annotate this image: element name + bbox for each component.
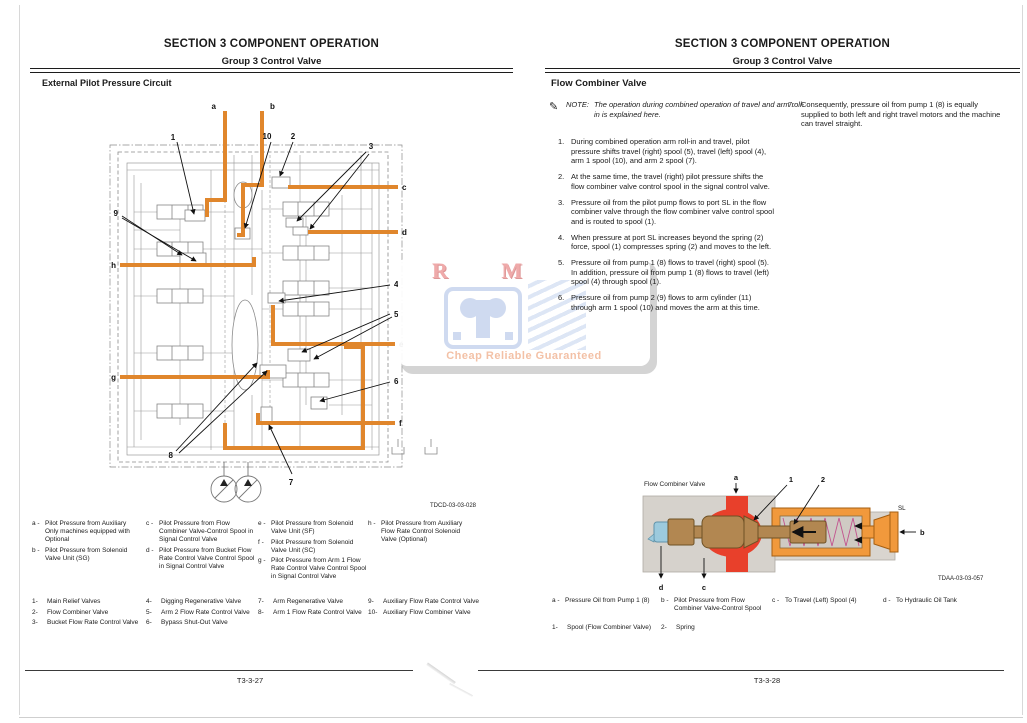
pump-symbols [211, 462, 261, 502]
legend-column: d -To Hydraulic Oil Tank [883, 597, 991, 605]
step-text: At the same time, the travel (right) pil… [571, 172, 776, 191]
step-item: 4.When pressure at port SL increases bey… [558, 233, 780, 252]
steps-list: 1.During combined operation arm roll-in … [558, 137, 780, 313]
header-title: SECTION 3 COMPONENT OPERATION [545, 38, 1020, 50]
callout-6: 6 [394, 377, 399, 386]
step-text: Pressure oil from the pilot pump flows t… [571, 198, 776, 227]
step-number: 6. [558, 293, 571, 312]
legend-text: Auxiliary Flow Combiner Valve [383, 609, 481, 617]
note-text: The operation during combined operation … [594, 100, 804, 119]
legend-key: 7- [258, 598, 273, 606]
header-rule [30, 68, 513, 73]
port-sl-label: SL [898, 505, 906, 512]
step-item: 6.Pressure oil from pump 2 (9) flows to … [558, 293, 780, 312]
legend-key: c - [146, 520, 159, 544]
legend-text: Pressure Oil from Pump 1 (8) [565, 597, 660, 605]
legend-entry: a -Pilot Pressure from Auxiliary Only ma… [32, 520, 142, 544]
legend-entry: b -Pilot Pressure from Flow Combiner Val… [661, 597, 769, 613]
callout-2: 2 [821, 475, 825, 484]
legend-key: c - [772, 597, 785, 605]
legend-entry: h -Pilot Pressure from Auxiliary Flow Ra… [368, 520, 478, 544]
step-number: 1. [558, 137, 571, 166]
note-label: NOTE: [566, 100, 589, 110]
legend-text: Pilot Pressure from Auxiliary Flow Rate … [381, 520, 477, 544]
figure-code: TDAA-03-03-057 [938, 576, 984, 582]
note-icon: ✎ [549, 100, 558, 113]
legend-key: d - [146, 547, 159, 571]
callout-d: d [402, 228, 407, 237]
legend-key: a - [32, 520, 45, 544]
legend-entry: b -Pilot Pressure from Solenoid Valve Un… [32, 547, 142, 563]
header-subtitle: Group 3 Control Valve [30, 56, 513, 67]
section-title: Flow Combiner Valve [551, 78, 647, 89]
legend-entry: 2-Spring [661, 624, 769, 632]
legend-column: 4-Digging Regenerative Valve 5-Arm 2 Flo… [146, 598, 261, 627]
legend-key: e - [258, 520, 271, 536]
legend-column: b -Pilot Pressure from Flow Combiner Val… [661, 597, 769, 613]
legend-text: To Hydraulic Oil Tank [896, 597, 991, 605]
legend-column: h -Pilot Pressure from Auxiliary Flow Ra… [368, 520, 478, 544]
legend-text: Pilot Pressure from Solenoid Valve Unit … [271, 520, 367, 536]
header-title: SECTION 3 COMPONENT OPERATION [30, 38, 513, 50]
tank-symbols [392, 439, 437, 454]
legend-text: Arm 1 Flow Rate Control Valve [273, 609, 371, 617]
step-item: 3.Pressure oil from the pilot pump flows… [558, 198, 780, 227]
callout-f: f [399, 419, 402, 428]
legend-text: Spool (Flow Combiner Valve) [567, 624, 660, 632]
callout-d: d [659, 583, 664, 592]
legend-entry: g -Pilot Pressure from Arm 1 Flow Rate C… [258, 557, 368, 581]
legend-column: 1-Spool (Flow Combiner Valve) [552, 624, 660, 632]
legend-entry: 1-Spool (Flow Combiner Valve) [552, 624, 660, 632]
section-title: External Pilot Pressure Circuit [42, 78, 172, 88]
legend-entry: 9-Auxiliary Flow Rate Control Valve [368, 598, 483, 606]
note: NOTE: The operation during combined oper… [566, 100, 806, 119]
callout-2: 2 [291, 132, 296, 141]
callout-c: c [702, 583, 706, 592]
legend-text: Bypass Shut-Out Valve [161, 619, 259, 627]
legend-text: Bucket Flow Rate Control Valve [47, 619, 145, 627]
legend-entry: c -Pilot Pressure from Flow Combiner Val… [146, 520, 256, 544]
legend-column: e -Pilot Pressure from Solenoid Valve Un… [258, 520, 368, 581]
step-text: Pressure oil from pump 1 (8) flows to tr… [571, 258, 776, 287]
legend-key: 1- [552, 624, 567, 632]
step-item: 1.During combined operation arm roll-in … [558, 137, 780, 166]
legend-column: 9-Auxiliary Flow Rate Control Valve 10-A… [368, 598, 483, 617]
step-text: When pressure at port SL increases beyon… [571, 233, 776, 252]
legend-key: 10- [368, 609, 383, 617]
legend-text: Pilot Pressure from Arm 1 Flow Rate Cont… [271, 557, 367, 581]
legend-text: Arm Regenerative Valve [273, 598, 371, 606]
legend-entry: f -Pilot Pressure from Solenoid Valve Un… [258, 539, 368, 555]
legend-text: Main Relief Valves [47, 598, 145, 606]
diagram-label: Flow Combiner Valve [644, 481, 706, 488]
legend-entry: 8-Arm 1 Flow Rate Control Valve [258, 609, 373, 617]
callout-7: 7 [289, 478, 294, 487]
legend-key: a - [552, 597, 565, 605]
legend-entry: a -Pressure Oil from Pump 1 (8) [552, 597, 660, 605]
legend-key: g - [258, 557, 271, 581]
legend-key: 2- [661, 624, 676, 632]
legend-entry: 10-Auxiliary Flow Combiner Valve [368, 609, 483, 617]
callout-3: 3 [369, 142, 374, 151]
legend-text: Auxiliary Flow Rate Control Valve [383, 598, 481, 606]
legend-key: b - [661, 597, 674, 613]
legend-key: 5- [146, 609, 161, 617]
legend-text: Pilot Pressure from Flow Combiner Valve-… [159, 520, 255, 544]
step-item: 5.Pressure oil from pump 1 (8) flows to … [558, 258, 780, 287]
legend-column: a -Pressure Oil from Pump 1 (8) [552, 597, 660, 605]
legend-entry: 7-Arm Regenerative Valve [258, 598, 373, 606]
callout-10: 10 [263, 132, 272, 141]
callout-a: a [212, 102, 217, 111]
callout-9: 9 [114, 209, 119, 218]
legend-text: Pilot Pressure from Bucket Flow Rate Con… [159, 547, 255, 571]
legend-entry: d -Pilot Pressure from Bucket Flow Rate … [146, 547, 256, 571]
legend-column: 2-Spring [661, 624, 769, 632]
step-text: Consequently, pressure oil from pump 1 (… [801, 100, 1006, 129]
legend-column: c -To Travel (Left) Spool (4) [772, 597, 880, 605]
manual-spread: { "document": { "watermark": { "top": "R… [0, 0, 1027, 723]
legend-key: 3- [32, 619, 47, 627]
legend-key: d - [883, 597, 896, 605]
header-subtitle: Group 3 Control Valve [545, 56, 1020, 67]
legend-text: Pilot Pressure from Flow Combiner Valve-… [674, 597, 769, 613]
legend-entry: 4-Digging Regenerative Valve [146, 598, 261, 606]
step-number: 5. [558, 258, 571, 287]
legend-entry: 5-Arm 2 Flow Rate Control Valve [146, 609, 261, 617]
step-number: 3. [558, 198, 571, 227]
step-number: 7. [788, 100, 801, 129]
callout-b: b [270, 102, 275, 111]
legend-text: Spring [676, 624, 769, 632]
legend-text: Pilot Pressure from Solenoid Valve Unit … [45, 547, 141, 563]
step-number: 4. [558, 233, 571, 252]
legend-key: 2- [32, 609, 47, 617]
legend-column: 1-Main Relief Valves 2-Flow Combiner Val… [32, 598, 147, 627]
callout-c: c [402, 183, 407, 192]
callout-h: h [111, 261, 116, 270]
legend-text: Flow Combiner Valve [47, 609, 145, 617]
legend-entry: d -To Hydraulic Oil Tank [883, 597, 991, 605]
legend-entry: 2-Flow Combiner Valve [32, 609, 147, 617]
step-text: Pressure oil from pump 2 (9) flows to ar… [571, 293, 776, 312]
legend-key: h - [368, 520, 381, 544]
callout-b: b [920, 528, 925, 537]
page-right: SECTION 3 COMPONENT OPERATION Group 3 Co… [535, 0, 1027, 723]
legend-entry: c -To Travel (Left) Spool (4) [772, 597, 880, 605]
legend-key: f - [258, 539, 271, 555]
watermark-tool-icon [443, 286, 523, 350]
step-number: 2. [558, 172, 571, 191]
legend-text: Digging Regenerative Valve [161, 598, 259, 606]
legend-column: c -Pilot Pressure from Flow Combiner Val… [146, 520, 256, 571]
legend-entry: 1-Main Relief Valves [32, 598, 147, 606]
legend-column: 7-Arm Regenerative Valve 8-Arm 1 Flow Ra… [258, 598, 373, 617]
callout-g: g [111, 373, 116, 382]
legend-entry: 3-Bucket Flow Rate Control Valve [32, 619, 147, 627]
step-item: 7. Consequently, pressure oil from pump … [788, 100, 1010, 129]
figure-code: TDCD-03-03-028 [430, 503, 477, 509]
callout-8: 8 [169, 451, 174, 460]
callout-1: 1 [171, 133, 176, 142]
legend-entry: e -Pilot Pressure from Solenoid Valve Un… [258, 520, 368, 536]
legend-column: a -Pilot Pressure from Auxiliary Only ma… [32, 520, 142, 563]
flow-combiner-valve-diagram: Flow Combiner Valve [640, 470, 1020, 595]
legend-key: 4- [146, 598, 161, 606]
legend-text: Arm 2 Flow Rate Control Valve [161, 609, 259, 617]
legend-text: Pilot Pressure from Solenoid Valve Unit … [271, 539, 367, 555]
legend-text: To Travel (Left) Spool (4) [785, 597, 880, 605]
legend-key: 6- [146, 619, 161, 627]
callout-1: 1 [789, 475, 793, 484]
legend-key: 9- [368, 598, 383, 606]
header-rule [545, 68, 1020, 73]
legend-text: Pilot Pressure from Auxiliary Only machi… [45, 520, 141, 544]
step-text: During combined operation arm roll-in an… [571, 137, 776, 166]
step-item: 2.At the same time, the travel (right) p… [558, 172, 780, 191]
legend-entry: 6-Bypass Shut-Out Valve [146, 619, 261, 627]
callout-a: a [734, 473, 739, 482]
legend-key: b - [32, 547, 45, 563]
legend-key: 8- [258, 609, 273, 617]
legend-key: 1- [32, 598, 47, 606]
